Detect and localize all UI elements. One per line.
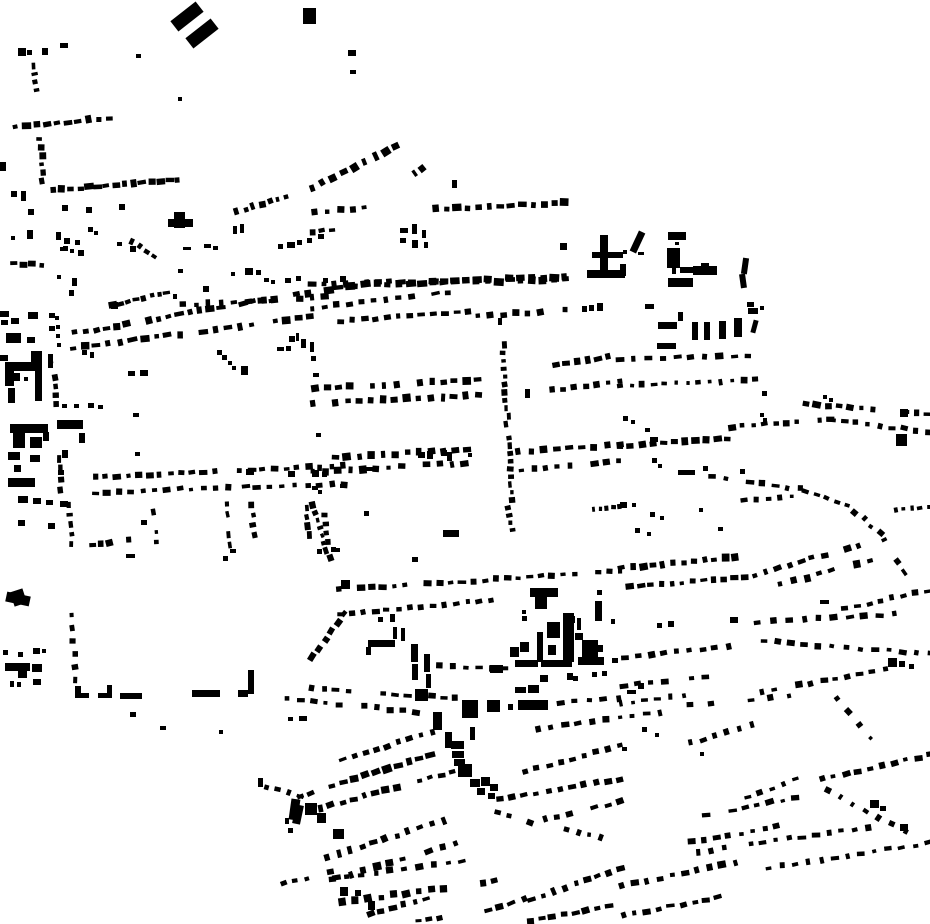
building: [560, 243, 567, 250]
building: [390, 397, 398, 403]
building: [249, 202, 255, 210]
building: [374, 704, 380, 711]
building: [405, 735, 414, 742]
building: [274, 786, 281, 792]
building: [192, 690, 220, 697]
building: [416, 379, 423, 387]
building: [702, 556, 708, 563]
building: [49, 326, 55, 331]
building: [351, 896, 358, 904]
building: [93, 474, 98, 480]
building: [331, 547, 336, 552]
building: [590, 444, 597, 451]
building: [504, 405, 507, 411]
building: [745, 354, 751, 359]
building: [400, 228, 408, 233]
building: [393, 784, 402, 792]
building: [515, 687, 526, 693]
building: [338, 897, 346, 906]
building: [774, 638, 782, 645]
building: [122, 180, 127, 187]
building: [730, 617, 738, 623]
building: [854, 604, 861, 608]
building: [475, 392, 482, 398]
building: [310, 229, 316, 235]
building: [548, 645, 556, 655]
building: [18, 48, 26, 56]
building: [436, 915, 443, 922]
building: [91, 343, 100, 348]
building: [754, 620, 761, 625]
building: [392, 584, 397, 589]
building: [152, 488, 157, 492]
building: [878, 761, 885, 769]
building: [63, 120, 72, 126]
building: [288, 717, 293, 721]
building: [248, 468, 257, 472]
building: [748, 698, 755, 702]
building: [8, 478, 35, 487]
building: [507, 442, 512, 449]
building: [349, 610, 356, 616]
building: [412, 240, 418, 248]
building: [522, 616, 527, 621]
building: [791, 795, 800, 801]
building: [468, 453, 472, 457]
building: [27, 230, 33, 239]
building: [699, 508, 703, 512]
building: [656, 876, 663, 882]
building: [893, 557, 901, 565]
building: [797, 835, 806, 839]
building: [760, 413, 764, 417]
building: [749, 721, 755, 728]
building: [361, 158, 367, 166]
building: [712, 835, 721, 841]
building: [396, 279, 406, 285]
building: [339, 167, 349, 176]
building: [820, 600, 829, 604]
building: [674, 380, 678, 384]
building: [638, 252, 644, 255]
building: [890, 759, 899, 767]
building: [157, 471, 162, 477]
building: [333, 301, 340, 308]
building: [162, 331, 171, 338]
building: [451, 741, 464, 749]
building: [150, 293, 155, 298]
building: [381, 785, 390, 793]
building: [620, 912, 626, 919]
building: [599, 696, 607, 702]
building: [509, 497, 516, 503]
building: [18, 671, 27, 678]
building: [508, 459, 514, 464]
building: [668, 232, 686, 240]
building: [322, 468, 329, 475]
building: [473, 276, 482, 283]
building: [771, 484, 779, 488]
building: [617, 378, 623, 384]
building: [914, 409, 919, 416]
building: [623, 416, 628, 421]
building: [344, 874, 350, 879]
building: [718, 379, 723, 386]
building: [372, 316, 379, 322]
building: [296, 296, 303, 302]
building: [562, 361, 570, 367]
building: [841, 606, 848, 611]
building: [845, 853, 850, 859]
building: [325, 539, 331, 545]
building: [306, 790, 315, 797]
building: [838, 794, 844, 800]
building: [660, 356, 666, 361]
building: [69, 613, 73, 617]
building: [32, 63, 36, 70]
building: [623, 250, 627, 254]
building: [130, 246, 136, 252]
building: [708, 474, 716, 479]
building: [657, 343, 676, 349]
building: [900, 593, 907, 599]
building: [53, 383, 58, 389]
building: [55, 316, 59, 320]
building: [718, 527, 723, 531]
building: [625, 583, 634, 590]
building: [146, 472, 154, 478]
building: [339, 779, 348, 785]
building: [617, 504, 622, 509]
building: [13, 373, 20, 381]
building: [93, 184, 102, 189]
building: [398, 463, 405, 469]
building: [887, 648, 892, 652]
building: [480, 879, 487, 886]
building: [681, 437, 688, 445]
building: [56, 325, 60, 329]
building: [582, 640, 598, 657]
building: [278, 244, 283, 249]
building: [360, 770, 370, 779]
building: [900, 425, 908, 432]
building: [813, 492, 820, 497]
building: [750, 829, 755, 833]
building: [576, 829, 582, 836]
building: [281, 316, 290, 324]
building: [337, 206, 344, 213]
building: [579, 780, 586, 788]
building: [477, 788, 485, 795]
building: [103, 326, 111, 331]
building: [400, 901, 406, 908]
building: [561, 911, 568, 917]
building: [18, 496, 28, 503]
building: [458, 859, 466, 864]
building: [577, 618, 581, 630]
building: [329, 480, 335, 487]
building: [823, 395, 827, 399]
building: [296, 276, 301, 281]
building: [322, 636, 331, 644]
building: [865, 824, 872, 831]
building: [411, 644, 418, 662]
building: [416, 448, 422, 456]
building: [141, 520, 147, 525]
building: [616, 458, 621, 463]
building: [346, 382, 354, 389]
building: [385, 859, 394, 867]
building: [604, 441, 611, 448]
building: [744, 795, 752, 800]
building: [378, 584, 386, 590]
building: [332, 399, 339, 407]
building: [339, 756, 347, 762]
building: [69, 638, 75, 643]
building: [372, 862, 382, 872]
building: [657, 623, 662, 628]
building: [390, 890, 398, 898]
building: [762, 826, 768, 832]
building: [322, 305, 329, 310]
building: [632, 910, 637, 915]
building: [750, 320, 758, 334]
building: [802, 401, 809, 407]
building: [515, 660, 538, 667]
building: [830, 774, 835, 778]
building: [824, 786, 832, 794]
building: [342, 452, 351, 461]
building: [285, 818, 289, 824]
building: [336, 702, 343, 707]
building: [329, 876, 337, 882]
building: [78, 250, 84, 256]
building: [590, 804, 599, 810]
building: [349, 775, 359, 783]
building: [487, 203, 492, 210]
building: [691, 559, 697, 564]
building: [707, 701, 714, 707]
building: [510, 528, 516, 532]
building: [432, 204, 439, 212]
building: [230, 300, 237, 305]
building: [185, 19, 218, 49]
building: [723, 728, 730, 736]
building: [674, 648, 679, 654]
building: [592, 507, 595, 512]
building: [525, 311, 530, 317]
building: [313, 373, 319, 377]
building: [737, 725, 742, 732]
building: [858, 647, 864, 652]
building: [595, 570, 601, 574]
building: [704, 322, 710, 340]
building: [581, 753, 587, 759]
building: [541, 893, 546, 898]
building: [767, 694, 774, 701]
building: [119, 204, 125, 210]
building: [693, 866, 699, 874]
building: [375, 279, 382, 284]
building: [719, 321, 726, 339]
building: [1, 320, 8, 325]
building: [217, 350, 222, 355]
building: [36, 137, 42, 141]
building: [285, 696, 290, 701]
building: [454, 310, 461, 314]
building: [574, 880, 579, 886]
building: [679, 901, 687, 908]
building: [357, 584, 366, 591]
building: [124, 299, 131, 305]
building: [205, 305, 215, 312]
building: [722, 554, 730, 562]
building: [855, 542, 861, 549]
building: [74, 404, 79, 408]
building: [256, 270, 261, 275]
building: [170, 2, 203, 32]
building: [450, 663, 456, 669]
building: [127, 490, 134, 495]
building: [366, 647, 371, 655]
building: [145, 316, 153, 325]
building: [502, 341, 507, 348]
building: [728, 424, 737, 431]
building: [162, 487, 171, 494]
building: [903, 410, 909, 414]
building: [127, 336, 138, 343]
building: [518, 700, 548, 710]
building: [537, 573, 544, 578]
building: [503, 421, 508, 428]
building: [679, 581, 684, 585]
building: [870, 800, 879, 808]
building: [48, 523, 55, 529]
building: [24, 377, 28, 381]
building: [708, 847, 714, 854]
building: [466, 599, 470, 604]
building: [93, 327, 101, 334]
building: [57, 455, 61, 463]
building: [196, 306, 202, 314]
building: [448, 580, 454, 584]
building: [702, 813, 711, 818]
building: [391, 451, 398, 458]
building: [668, 278, 693, 287]
building: [689, 676, 694, 680]
building: [868, 524, 874, 530]
building: [777, 581, 782, 587]
building: [17, 682, 21, 687]
building: [391, 693, 399, 698]
building: [746, 480, 755, 485]
building: [452, 751, 464, 758]
building: [292, 878, 298, 883]
building: [317, 525, 324, 530]
building: [30, 437, 42, 448]
building: [12, 124, 18, 129]
building: [825, 403, 832, 409]
building: [73, 677, 77, 684]
building: [626, 443, 634, 449]
building: [356, 398, 363, 404]
building: [340, 887, 348, 896]
building: [368, 397, 374, 404]
building: [417, 692, 421, 698]
building: [894, 507, 899, 513]
building: [578, 445, 586, 449]
building: [405, 449, 411, 455]
building: [578, 657, 604, 665]
building: [440, 696, 447, 700]
building: [212, 326, 218, 334]
building: [593, 381, 600, 389]
building: [682, 693, 687, 698]
building: [516, 275, 525, 282]
building: [674, 354, 682, 359]
building: [540, 275, 547, 283]
building: [140, 370, 148, 376]
building: [587, 698, 592, 702]
building: [314, 644, 323, 653]
building: [644, 878, 650, 885]
building: [604, 869, 612, 877]
building: [317, 549, 322, 554]
building: [425, 916, 432, 922]
building: [670, 873, 675, 878]
building: [861, 515, 868, 522]
building: [317, 813, 326, 823]
building: [496, 204, 504, 208]
building: [309, 184, 316, 192]
building: [816, 570, 823, 576]
building: [463, 666, 469, 670]
building: [441, 601, 447, 608]
building: [616, 776, 624, 783]
building: [71, 329, 77, 335]
building: [94, 231, 98, 235]
building: [560, 387, 566, 392]
building: [412, 557, 418, 562]
building: [773, 564, 783, 572]
building: [323, 522, 330, 527]
building: [11, 318, 19, 324]
building: [740, 423, 745, 428]
building: [452, 694, 458, 700]
building: [11, 236, 15, 240]
building: [816, 615, 822, 621]
building: [400, 238, 406, 243]
building: [508, 520, 512, 524]
building: [336, 849, 342, 858]
building: [507, 793, 516, 801]
building: [188, 470, 195, 475]
building: [406, 757, 413, 766]
building: [494, 809, 501, 815]
building: [316, 433, 321, 437]
building: [30, 455, 40, 462]
building: [222, 355, 227, 360]
building: [326, 554, 334, 562]
building: [3, 650, 8, 655]
building: [924, 412, 930, 416]
building: [637, 583, 646, 589]
building: [560, 198, 569, 206]
building: [787, 693, 792, 698]
building: [605, 353, 611, 360]
building: [117, 339, 123, 347]
building: [166, 178, 175, 182]
